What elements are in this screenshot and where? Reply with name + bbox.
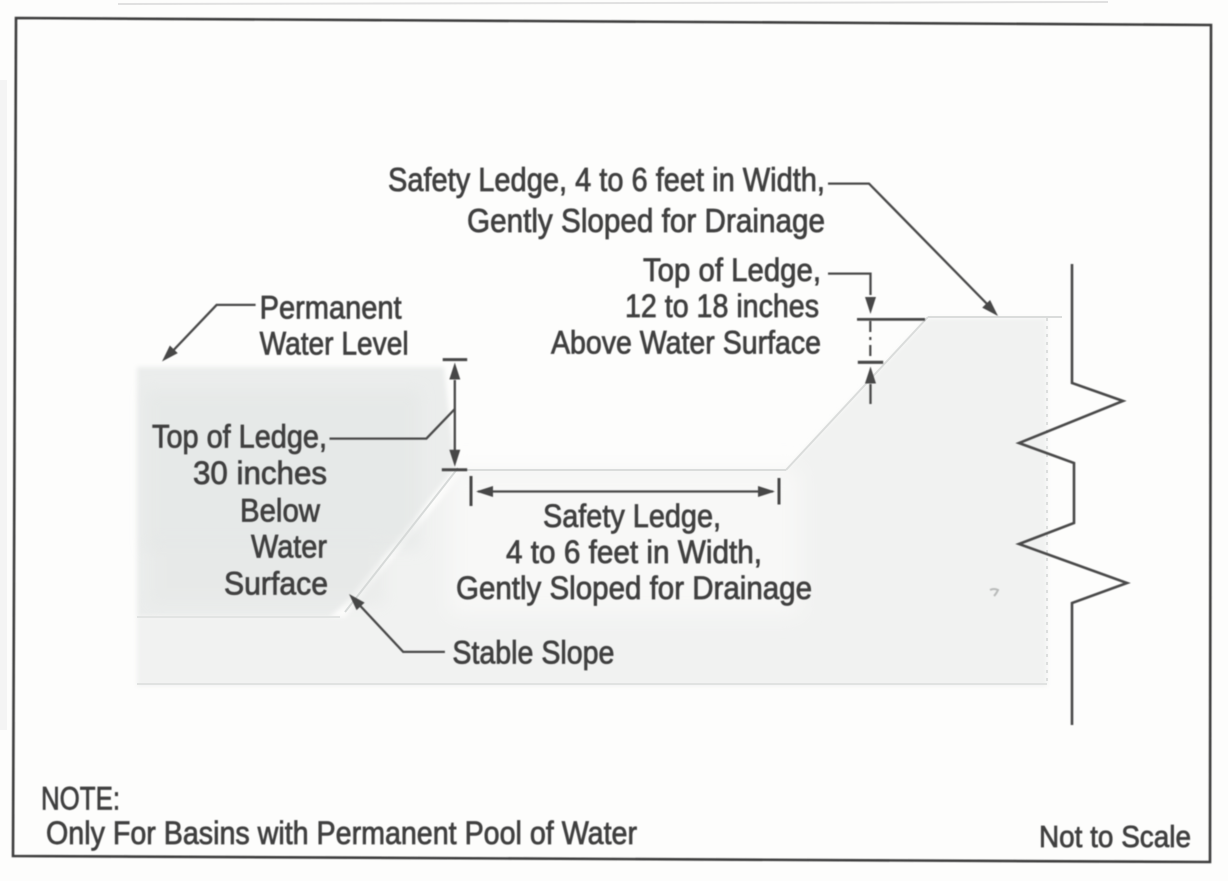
svg-text:Only For Basins with Permanent: Only For Basins with Permanent Pool of W… xyxy=(46,815,637,851)
svg-text:NOTE:: NOTE: xyxy=(41,780,120,816)
svg-text:Permanent: Permanent xyxy=(260,289,402,325)
svg-text:Safety Ledge,: Safety Ledge, xyxy=(543,498,721,534)
svg-text:Gently Sloped for Drainage: Gently Sloped for Drainage xyxy=(467,202,825,239)
svg-text:Water Level: Water Level xyxy=(260,326,409,362)
svg-text:Surface: Surface xyxy=(224,566,328,602)
svg-text:Top of Ledge,: Top of Ledge, xyxy=(152,419,327,455)
svg-text:Above Water Surface: Above Water Surface xyxy=(551,325,821,361)
svg-text:Below: Below xyxy=(240,492,321,528)
svg-text:30 inches: 30 inches xyxy=(193,455,327,491)
svg-text:Top of Ledge,: Top of Ledge, xyxy=(643,252,821,288)
svg-text:4 to 6 feet in Width,: 4 to 6 feet in Width, xyxy=(506,534,762,570)
svg-text:Gently Sloped for Drainage: Gently Sloped for Drainage xyxy=(456,570,812,606)
svg-text:Stable Slope: Stable Slope xyxy=(452,634,614,670)
svg-text:Water: Water xyxy=(251,529,327,565)
svg-text:Not to Scale: Not to Scale xyxy=(1039,819,1191,854)
svg-text:Safety Ledge, 4 to 6 feet in W: Safety Ledge, 4 to 6 feet in Width, xyxy=(388,161,825,198)
svg-text:12 to 18 inches: 12 to 18 inches xyxy=(625,288,819,324)
